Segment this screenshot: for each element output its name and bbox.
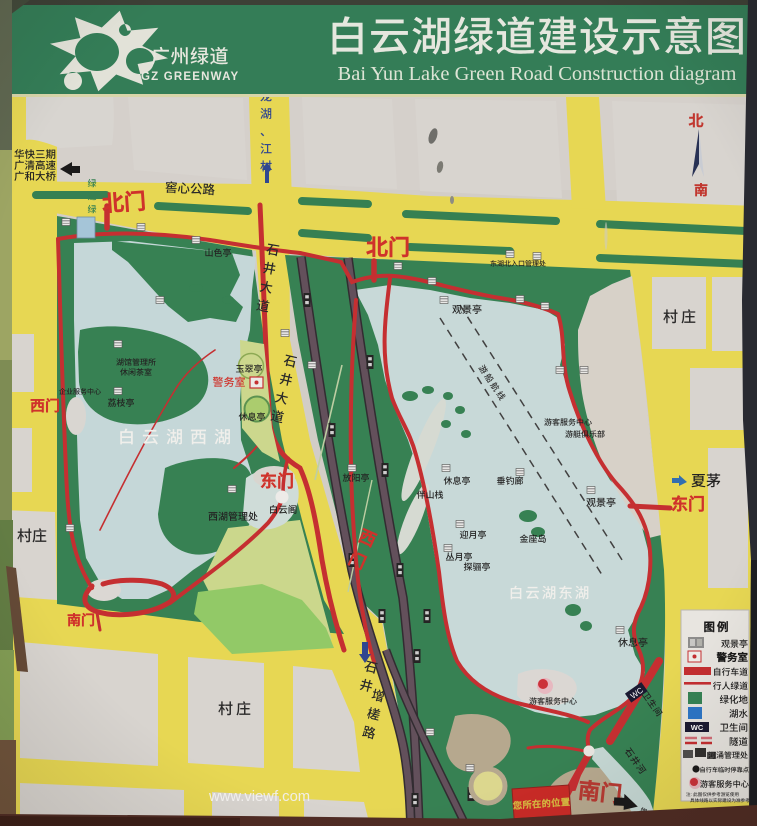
svg-text:www.viewf.com: www.viewf.com [208,789,310,805]
